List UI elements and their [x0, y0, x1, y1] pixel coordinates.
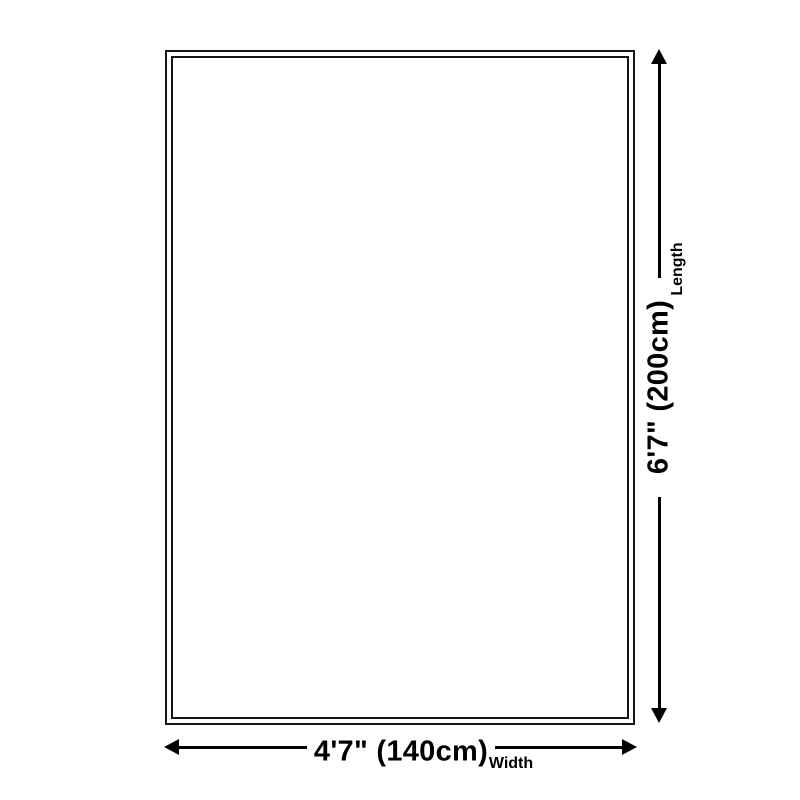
width-arrow-line-left [178, 746, 307, 749]
length-dimension-label: Length [669, 242, 687, 295]
width-arrow-line-right [495, 746, 623, 749]
width-dimension-label: Width [489, 755, 533, 773]
rug-size-diagram: 6'7" (200cm) Length 4'7" (140cm) Width [0, 0, 800, 800]
length-arrow-line-bottom [658, 497, 661, 710]
arrow-left-icon [164, 739, 179, 755]
width-dimension-value: 4'7" (140cm) [314, 736, 488, 769]
length-dimension-value: 6'7" (200cm) [643, 300, 676, 474]
arrow-right-icon [622, 739, 637, 755]
rug-inner-outline [171, 56, 629, 719]
arrow-down-icon [651, 708, 667, 723]
length-arrow-line-top [658, 62, 661, 278]
rug-outline [165, 50, 635, 725]
